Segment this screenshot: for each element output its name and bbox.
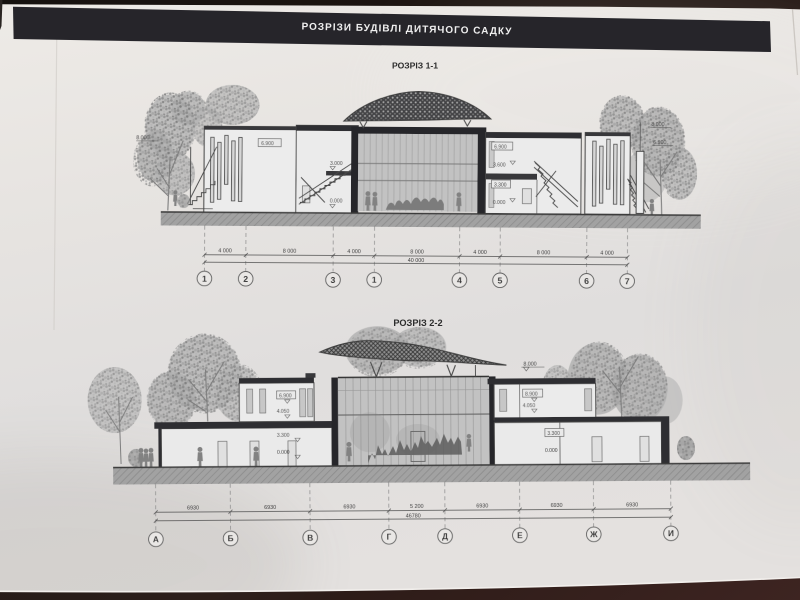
svg-text:Ж: Ж xyxy=(589,529,598,539)
svg-text:5 200: 5 200 xyxy=(410,504,424,510)
svg-text:Г: Г xyxy=(387,532,392,542)
svg-text:6.900: 6.900 xyxy=(279,393,292,399)
svg-text:4: 4 xyxy=(457,275,462,285)
svg-text:8 000: 8 000 xyxy=(283,249,297,255)
svg-text:8.900: 8.900 xyxy=(525,392,538,398)
svg-text:3: 3 xyxy=(331,275,336,285)
svg-text:Б: Б xyxy=(228,533,234,543)
svg-text:2: 2 xyxy=(243,274,248,284)
svg-text:РОЗРІЗ 1-1: РОЗРІЗ 1-1 xyxy=(392,61,438,71)
svg-text:3.300: 3.300 xyxy=(277,433,290,439)
svg-text:Е: Е xyxy=(517,530,523,540)
svg-text:8.000: 8.000 xyxy=(651,122,664,128)
svg-text:7: 7 xyxy=(625,276,630,286)
svg-text:6930: 6930 xyxy=(264,505,276,511)
svg-text:И: И xyxy=(668,528,674,538)
svg-text:4 000: 4 000 xyxy=(473,250,487,256)
svg-text:0.000: 0.000 xyxy=(330,198,343,204)
svg-text:6: 6 xyxy=(584,276,589,286)
svg-text:40 000: 40 000 xyxy=(408,258,425,264)
svg-text:8 000: 8 000 xyxy=(410,249,424,255)
svg-text:3.300: 3.300 xyxy=(494,182,507,188)
svg-text:8.000: 8.000 xyxy=(136,135,149,141)
svg-text:6930: 6930 xyxy=(187,505,199,511)
svg-text:А: А xyxy=(153,534,159,544)
svg-text:6.900: 6.900 xyxy=(653,140,666,146)
svg-text:РОЗРІЗ 2-2: РОЗРІЗ 2-2 xyxy=(393,318,442,328)
svg-text:3.000: 3.000 xyxy=(330,161,343,167)
svg-text:1: 1 xyxy=(202,274,207,284)
svg-text:3.600: 3.600 xyxy=(493,162,506,168)
svg-text:6.900: 6.900 xyxy=(494,144,507,150)
svg-text:1: 1 xyxy=(372,275,377,285)
svg-text:4 000: 4 000 xyxy=(600,251,614,257)
svg-text:0.000: 0.000 xyxy=(277,450,290,456)
svg-text:0.000: 0.000 xyxy=(545,448,558,454)
svg-text:6930: 6930 xyxy=(551,503,563,509)
svg-text:4 000: 4 000 xyxy=(347,249,361,255)
svg-text:0.000: 0.000 xyxy=(493,200,506,206)
svg-text:5: 5 xyxy=(498,275,503,285)
svg-text:8 000: 8 000 xyxy=(537,250,551,256)
svg-text:8.000: 8.000 xyxy=(523,362,536,368)
svg-text:4 000: 4 000 xyxy=(218,248,232,254)
svg-text:3.300: 3.300 xyxy=(547,431,560,437)
svg-text:6930: 6930 xyxy=(476,503,488,509)
svg-text:46780: 46780 xyxy=(406,513,421,519)
svg-text:6.900: 6.900 xyxy=(261,141,274,147)
svg-text:4.050: 4.050 xyxy=(523,403,536,409)
svg-text:4.050: 4.050 xyxy=(277,409,290,415)
svg-text:В: В xyxy=(307,532,313,542)
svg-text:Д: Д xyxy=(442,531,448,541)
svg-text:6930: 6930 xyxy=(626,502,638,508)
svg-text:6930: 6930 xyxy=(343,504,355,510)
